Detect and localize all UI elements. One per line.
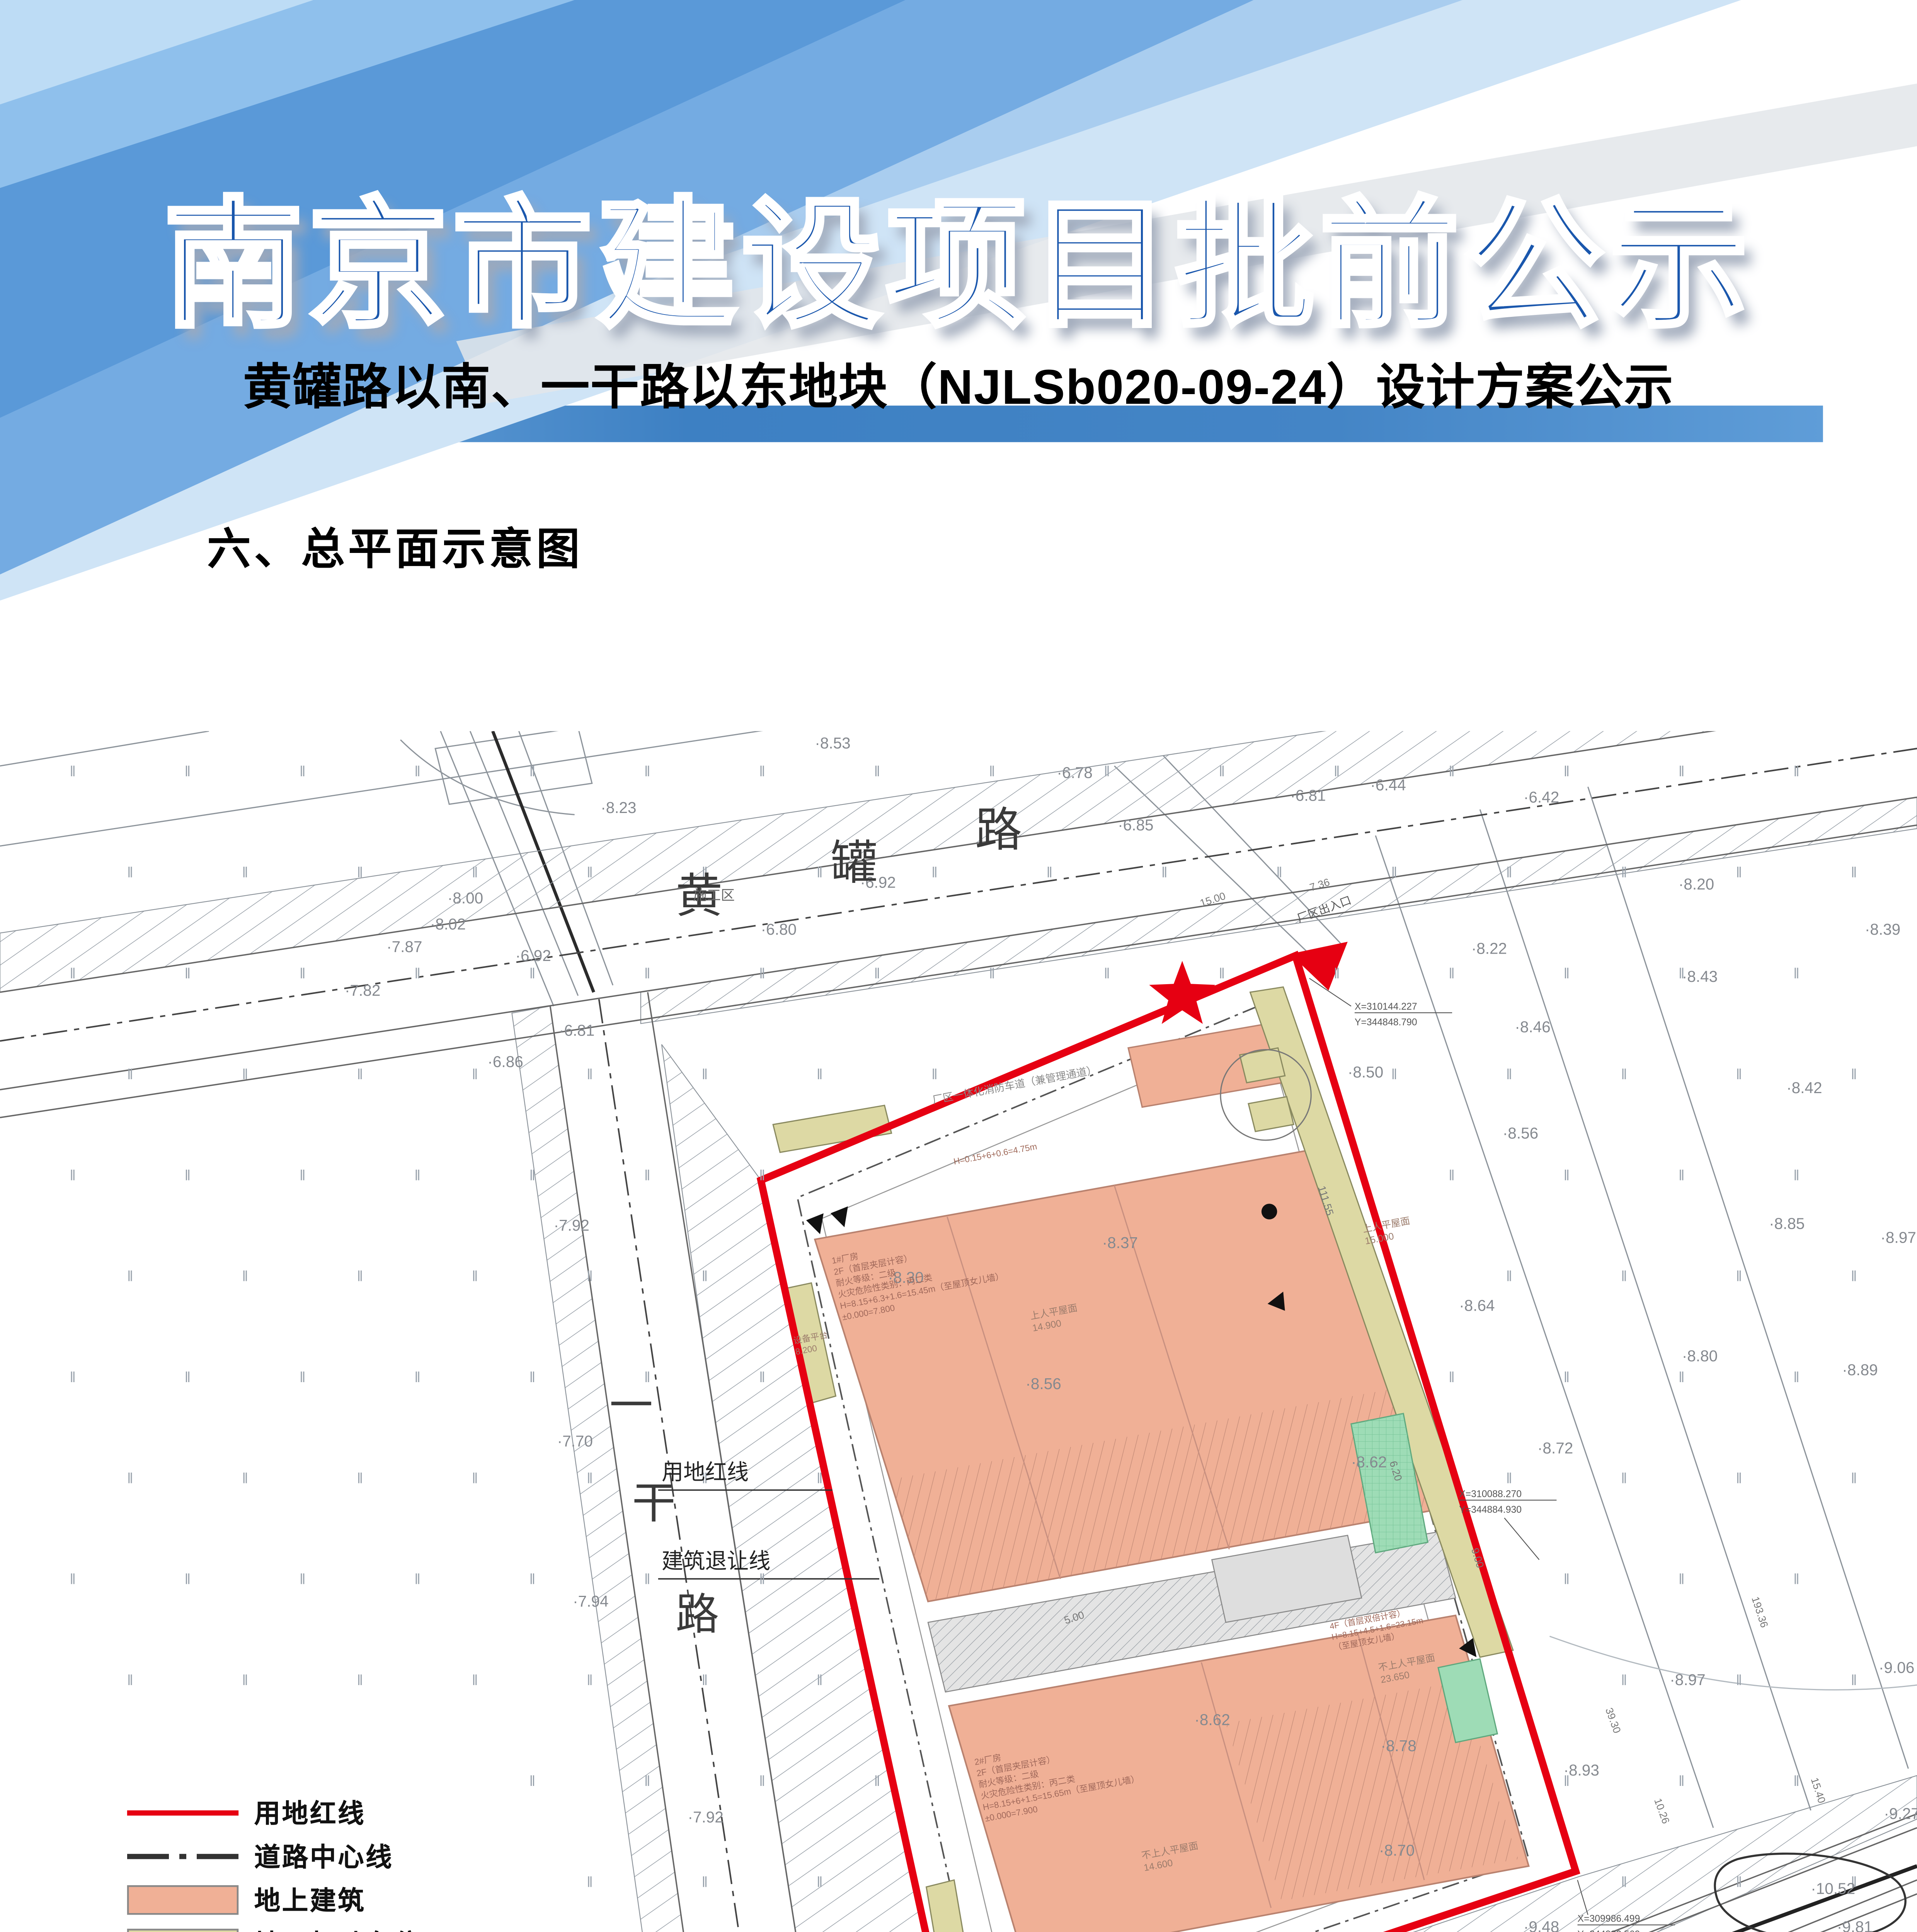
road-name-char: 路 — [676, 1590, 719, 1639]
paddy-mark: ‖ — [644, 965, 650, 982]
elevation-label: ·8.37 — [1102, 1234, 1138, 1252]
paddy-mark: ‖ — [759, 1571, 765, 1588]
paddy-mark: ‖ — [242, 1268, 248, 1285]
map-annotation: 施工区 — [693, 887, 735, 903]
paddy-mark: ‖ — [414, 1571, 421, 1588]
paddy-mark: ‖ — [587, 1874, 593, 1890]
paddy-mark: ‖ — [70, 1571, 76, 1588]
elevation-label: ·8.56 — [1025, 1375, 1061, 1393]
legend-label: 地上建筑 — [254, 1882, 366, 1918]
coordinate-label: X=309986.499 — [1578, 1914, 1640, 1924]
motor-parking-swatch-icon — [127, 1929, 238, 1932]
elevation-label: ·6.78 — [1057, 764, 1093, 782]
legend-item-redline: 用地红线 — [127, 1791, 528, 1835]
paddy-mark: ‖ — [1104, 965, 1110, 982]
legend-item-centerline: 道路中心线 — [127, 1835, 528, 1878]
paddy-mark: ‖ — [185, 763, 191, 780]
paddy-mark: ‖ — [1506, 864, 1512, 881]
paddy-mark: ‖ — [529, 1571, 536, 1588]
elevation-label: ·8.97 — [1880, 1229, 1916, 1247]
elevation-label: ·6.81 — [1290, 786, 1326, 804]
elevation-label: ·9.81 — [1837, 1918, 1873, 1932]
paddy-mark: ‖ — [1736, 1066, 1742, 1083]
paddy-mark: ‖ — [931, 1066, 938, 1083]
coordinate-label: X=310144.227 — [1355, 1002, 1417, 1012]
paddy-mark: ‖ — [817, 1066, 823, 1083]
paddy-mark: ‖ — [529, 763, 536, 780]
paddy-mark: ‖ — [1449, 763, 1455, 780]
paddy-mark: ‖ — [644, 1167, 650, 1184]
paddy-mark: ‖ — [300, 965, 306, 982]
paddy-mark: ‖ — [759, 965, 765, 982]
building-annotation-line: 上人平屋面 — [1362, 1215, 1411, 1235]
paddy-mark: ‖ — [1449, 1167, 1455, 1184]
building-annotation: 上人平屋面15.000 — [1362, 1215, 1413, 1247]
coordinate-leader — [1504, 1518, 1539, 1560]
paddy-mark: ‖ — [472, 1268, 478, 1285]
paddy-mark: ‖ — [414, 1167, 421, 1184]
paddy-mark: ‖ — [1563, 1369, 1570, 1386]
header-wedge — [0, 0, 313, 104]
paddy-mark: ‖ — [1851, 1268, 1857, 1285]
paddy-mark: ‖ — [1851, 864, 1857, 881]
section-heading: 六、总平面示意图 — [207, 515, 583, 578]
coordinate-label: Y=344884.930 — [1459, 1505, 1522, 1515]
elevation-label: ·8.39 — [1865, 920, 1900, 938]
paddy-mark: ‖ — [357, 1672, 363, 1689]
paddy-mark: ‖ — [587, 1066, 593, 1083]
paddy-mark: ‖ — [529, 1167, 536, 1184]
legend-item-motor-parking: 地面机动车位 — [127, 1922, 528, 1932]
paddy-mark: ‖ — [185, 1369, 191, 1386]
legend-label: 道路中心线 — [254, 1838, 393, 1875]
elevation-label: ·8.89 — [1842, 1361, 1878, 1379]
elevation-label: ·8.02 — [430, 915, 466, 933]
paddy-mark: ‖ — [759, 1773, 765, 1789]
paddy-mark: ‖ — [414, 763, 421, 780]
paddy-mark: ‖ — [70, 965, 76, 982]
page-title: 南京市建设项目批前公示 — [0, 153, 1917, 355]
elevation-label: ·7.87 — [386, 938, 422, 956]
paddy-mark: ‖ — [759, 763, 765, 780]
elevation-label: ·8.85 — [1769, 1215, 1805, 1233]
paddy-mark: ‖ — [1793, 1773, 1800, 1789]
paddy-mark: ‖ — [414, 965, 421, 982]
dimension-label: 15.40 — [1808, 1776, 1827, 1805]
elevation-label: ·8.43 — [1682, 968, 1718, 985]
paddy-mark: ‖ — [1563, 763, 1570, 780]
elevation-label: ·6.42 — [1524, 788, 1559, 806]
elevation-label: ·9.48 — [1524, 1918, 1559, 1932]
paddy-mark: ‖ — [1506, 1268, 1512, 1285]
road-name-char: 干 — [632, 1478, 676, 1527]
paddy-mark: ‖ — [1679, 763, 1685, 780]
paddy-mark: ‖ — [414, 1369, 421, 1386]
legend-item-building: 地上建筑 — [127, 1878, 528, 1922]
paddy-mark: ‖ — [702, 1268, 708, 1285]
elevation-label: ·8.46 — [1515, 1018, 1550, 1036]
paddy-mark: ‖ — [242, 1066, 248, 1083]
building-swatch-icon — [127, 1885, 238, 1915]
elevation-label: ·8.70 — [1379, 1841, 1415, 1859]
paddy-mark: ‖ — [185, 1167, 191, 1184]
paddy-mark: ‖ — [874, 763, 880, 780]
paddy-mark: ‖ — [702, 1066, 708, 1083]
paddy-mark: ‖ — [587, 1470, 593, 1486]
paddy-mark: ‖ — [1793, 1167, 1800, 1184]
elevation-label: ·8.42 — [1786, 1079, 1822, 1097]
paddy-mark: ‖ — [1851, 1470, 1857, 1486]
paddy-mark: ‖ — [1851, 1672, 1857, 1689]
elevation-label: ·8.62 — [1351, 1453, 1387, 1471]
road-name-char: 路 — [975, 803, 1022, 856]
elevation-label: ·7.92 — [688, 1808, 723, 1826]
paddy-mark: ‖ — [1506, 1470, 1512, 1486]
paddy-mark: ‖ — [1391, 1066, 1397, 1083]
paddy-mark: ‖ — [242, 864, 248, 881]
paddy-mark: ‖ — [472, 1066, 478, 1083]
paddy-mark: ‖ — [1334, 965, 1340, 982]
paddy-mark: ‖ — [529, 1369, 536, 1386]
paddy-mark: ‖ — [70, 1369, 76, 1386]
paddy-mark: ‖ — [874, 1773, 880, 1789]
paddy-mark: ‖ — [185, 1571, 191, 1588]
paddy-mark: ‖ — [817, 1672, 823, 1689]
paddy-mark: ‖ — [1736, 1470, 1742, 1486]
paddy-mark: ‖ — [1047, 864, 1053, 881]
paddy-mark: ‖ — [587, 864, 593, 881]
elevation-label: ·6.92 — [515, 947, 551, 964]
paddy-mark: ‖ — [1679, 1167, 1685, 1184]
well-dot — [1262, 1204, 1277, 1219]
legend: 用地红线 道路中心线 地上建筑 地面机动车位 地面非机动车位 出入口 ★ 公示地… — [127, 1791, 528, 1932]
paddy-mark: ‖ — [1621, 1470, 1627, 1486]
paddy-mark: ‖ — [1219, 965, 1225, 982]
paddy-mark: ‖ — [1679, 1571, 1685, 1588]
elevation-label: ·7.82 — [345, 981, 380, 999]
elevation-label: ·6.86 — [487, 1053, 523, 1071]
paddy-mark: ‖ — [1449, 965, 1455, 982]
paddy-mark: ‖ — [127, 1470, 133, 1486]
paddy-mark: ‖ — [127, 1066, 133, 1083]
paddy-mark: ‖ — [357, 1268, 363, 1285]
site-plan: ‖‖‖‖‖‖‖‖‖‖‖‖‖‖‖‖‖‖‖‖‖‖‖‖‖‖‖‖‖‖‖‖‖‖‖‖‖‖‖‖… — [0, 731, 1917, 1932]
paddy-mark: ‖ — [587, 1672, 593, 1689]
paddy-mark: ‖ — [702, 1874, 708, 1890]
elevation-label: ·8.50 — [1348, 1063, 1383, 1081]
paddy-mark: ‖ — [300, 763, 306, 780]
paddy-mark: ‖ — [127, 1268, 133, 1285]
paddy-mark: ‖ — [1506, 1066, 1512, 1083]
dimension-label: 193.36 — [1749, 1595, 1770, 1629]
paddy-mark: ‖ — [1736, 864, 1742, 881]
paddy-mark: ‖ — [1851, 1066, 1857, 1083]
map-annotation: 用地红线 — [662, 1460, 749, 1484]
paddy-mark: ‖ — [127, 864, 133, 881]
paddy-mark: ‖ — [1679, 1773, 1685, 1789]
elevation-label: ·8.80 — [1682, 1347, 1718, 1365]
paddy-mark: ‖ — [472, 1470, 478, 1486]
paddy-mark: ‖ — [1679, 1369, 1685, 1386]
paddy-mark: ‖ — [70, 763, 76, 780]
paddy-mark: ‖ — [300, 1369, 306, 1386]
paddy-mark: ‖ — [759, 1167, 765, 1184]
elevation-label: ·8.64 — [1459, 1296, 1495, 1314]
paddy-mark: ‖ — [1793, 1571, 1800, 1588]
road-name-char: 一 — [609, 1381, 653, 1430]
elevation-label: ·8.93 — [1563, 1761, 1599, 1779]
legend-label: 用地红线 — [254, 1795, 366, 1832]
paddy-mark: ‖ — [1621, 864, 1627, 881]
paddy-mark: ‖ — [1563, 1571, 1570, 1588]
paddy-mark: ‖ — [1161, 864, 1168, 881]
elevation-label: ·8.22 — [1471, 940, 1507, 957]
paddy-mark: ‖ — [185, 965, 191, 982]
elevation-label: ·8.20 — [1679, 875, 1714, 893]
elevation-label: ·10.52 — [1811, 1879, 1855, 1897]
elevation-label: ·6.80 — [761, 920, 797, 938]
paddy-mark: ‖ — [644, 1571, 650, 1588]
paddy-mark: ‖ — [1391, 864, 1397, 881]
centerline-swatch-icon — [127, 1855, 238, 1859]
paddy-mark: ‖ — [1276, 864, 1282, 881]
elevation-label: ·8.56 — [1503, 1124, 1538, 1142]
legend-label: 地面机动车位 — [254, 1925, 422, 1932]
elevation-label: ·8.00 — [448, 889, 483, 907]
paddy-mark: ‖ — [529, 965, 536, 982]
elevation-label: ·8.97 — [1670, 1671, 1705, 1689]
elevation-label: ·8.53 — [815, 734, 850, 752]
dimension-label: 39.30 — [1603, 1706, 1623, 1735]
paddy-mark: ‖ — [817, 1470, 823, 1486]
paddy-mark: ‖ — [357, 864, 363, 881]
paddy-mark: ‖ — [1621, 1874, 1627, 1890]
elevation-label: ·6.44 — [1370, 776, 1406, 794]
paddy-mark: ‖ — [1621, 1268, 1627, 1285]
elevation-label: ·7.70 — [557, 1432, 593, 1450]
paddy-mark: ‖ — [472, 864, 478, 881]
paddy-mark: ‖ — [989, 763, 995, 780]
road-name-char: 罐 — [831, 837, 878, 889]
coordinate-label: X=310088.270 — [1459, 1489, 1522, 1499]
subtitle: 黄罐路以南、一干路以东地块（NJLSb020-09-24）设计方案公示 — [0, 350, 1917, 420]
paddy-mark: ‖ — [1793, 1369, 1800, 1386]
elevation-label: ·8.23 — [601, 799, 636, 816]
elevation-label: ·8.62 — [1194, 1711, 1230, 1728]
paddy-mark: ‖ — [1621, 1066, 1627, 1083]
coordinate-label: Y=344902.569 — [1578, 1929, 1640, 1932]
elevation-label: ·9.27 — [1884, 1805, 1917, 1823]
redline-swatch-icon — [127, 1810, 238, 1816]
paddy-mark: ‖ — [1793, 763, 1800, 780]
dimension-label: 10.26 — [1652, 1797, 1672, 1825]
paddy-mark: ‖ — [300, 1167, 306, 1184]
elevation-label: ·9.06 — [1879, 1658, 1914, 1676]
paddy-mark: ‖ — [1449, 1369, 1455, 1386]
paddy-mark: ‖ — [1621, 1672, 1627, 1689]
paddy-mark: ‖ — [644, 1773, 650, 1789]
paddy-mark: ‖ — [1736, 1268, 1742, 1285]
paddy-mark: ‖ — [817, 864, 823, 881]
paddy-mark: ‖ — [1334, 763, 1340, 780]
elevation-label: ·7.94 — [573, 1592, 608, 1610]
paddy-mark: ‖ — [1104, 763, 1110, 780]
paddy-mark: ‖ — [357, 1066, 363, 1083]
paddy-mark: ‖ — [242, 1470, 248, 1486]
paddy-mark: ‖ — [1563, 1167, 1570, 1184]
paddy-mark: ‖ — [759, 1369, 765, 1386]
paddy-mark: ‖ — [1736, 1874, 1742, 1890]
elevation-label: ·8.72 — [1537, 1439, 1573, 1457]
elevation-label: ·8.78 — [1381, 1737, 1416, 1755]
paddy-mark: ‖ — [644, 763, 650, 780]
paddy-mark: ‖ — [242, 1672, 248, 1689]
elevation-label: ·6.85 — [1118, 816, 1153, 834]
paddy-mark: ‖ — [472, 1672, 478, 1689]
elevation-label: ·6.81 — [559, 1021, 594, 1039]
elevation-label: ·7.92 — [554, 1216, 589, 1234]
paddy-mark: ‖ — [989, 965, 995, 982]
poster: 南京市建设项目批前公示 黄罐路以南、一干路以东地块（NJLSb020-09-24… — [0, 0, 1917, 1932]
paddy-mark: ‖ — [1219, 763, 1225, 780]
paddy-mark: ‖ — [357, 1470, 363, 1486]
coordinate-label: Y=344848.790 — [1355, 1017, 1417, 1027]
paddy-mark: ‖ — [1793, 965, 1800, 982]
paddy-mark: ‖ — [1563, 965, 1570, 982]
paddy-mark: ‖ — [300, 1571, 306, 1588]
paddy-mark: ‖ — [931, 864, 938, 881]
paddy-mark: ‖ — [874, 965, 880, 982]
map-annotation: 建筑退让线 — [662, 1549, 770, 1573]
paddy-mark: ‖ — [1736, 1672, 1742, 1689]
paddy-mark: ‖ — [817, 1874, 823, 1890]
paddy-mark: ‖ — [702, 1672, 708, 1689]
paddy-mark: ‖ — [529, 1773, 536, 1789]
paddy-mark: ‖ — [70, 1167, 76, 1184]
paddy-mark: ‖ — [587, 1268, 593, 1285]
paddy-mark: ‖ — [127, 1672, 133, 1689]
